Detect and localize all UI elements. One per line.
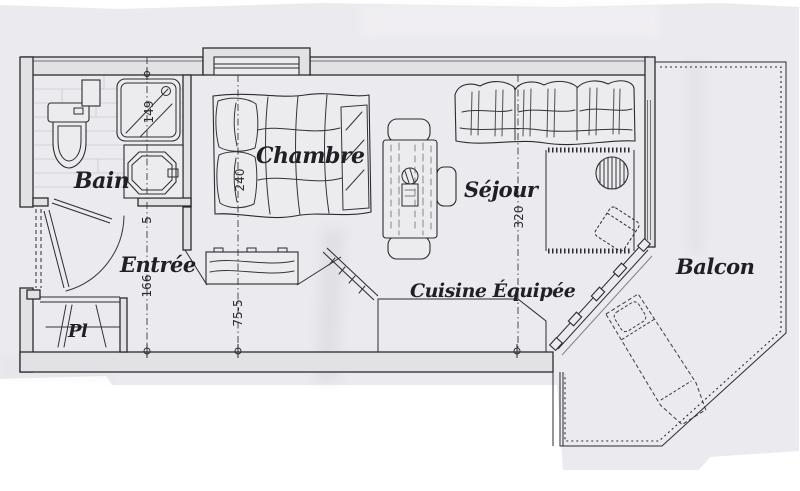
room-label-sejour: Séjour xyxy=(464,177,540,202)
room-label-entree: Entrée xyxy=(119,252,196,277)
dim-shower-width: 149 xyxy=(142,101,156,124)
shelf xyxy=(82,80,100,106)
bay-window xyxy=(203,48,310,75)
scanned-floor-plan: Bain Entrée Pl Chambre Séjour Cuisine Éq… xyxy=(0,0,800,491)
pedestal-table xyxy=(596,157,628,189)
dining-chair xyxy=(388,119,430,142)
dim-dresser-width: 75-5 xyxy=(231,299,245,326)
dim-bed-length: 240 xyxy=(233,169,247,192)
floor-plan-svg: Bain Entrée Pl Chambre Séjour Cuisine Éq… xyxy=(0,0,800,491)
dim-hall-length: 166 xyxy=(140,275,154,298)
dim-sejour-depth: 320 xyxy=(512,206,526,229)
room-label-placard: Pl xyxy=(67,321,88,342)
sofa xyxy=(455,81,635,145)
room-label-cuisine: Cuisine Équipée xyxy=(410,279,576,302)
room-label-chambre: Chambre xyxy=(256,143,365,169)
washbasin xyxy=(124,145,183,198)
room-label-bain: Bain xyxy=(73,168,129,194)
dim-hall-gap: 5 xyxy=(140,216,154,224)
dining-chair xyxy=(437,167,456,206)
dining-chair xyxy=(388,236,430,259)
dresser xyxy=(206,248,298,284)
room-label-balcon: Balcon xyxy=(675,254,754,279)
